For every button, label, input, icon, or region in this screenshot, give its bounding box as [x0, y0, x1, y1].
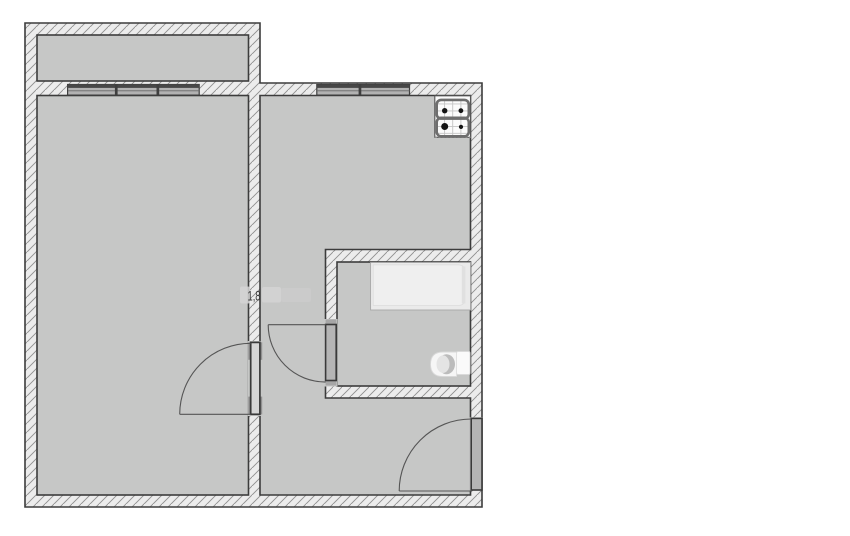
svg-text:1,8: 1,8 — [248, 288, 261, 304]
